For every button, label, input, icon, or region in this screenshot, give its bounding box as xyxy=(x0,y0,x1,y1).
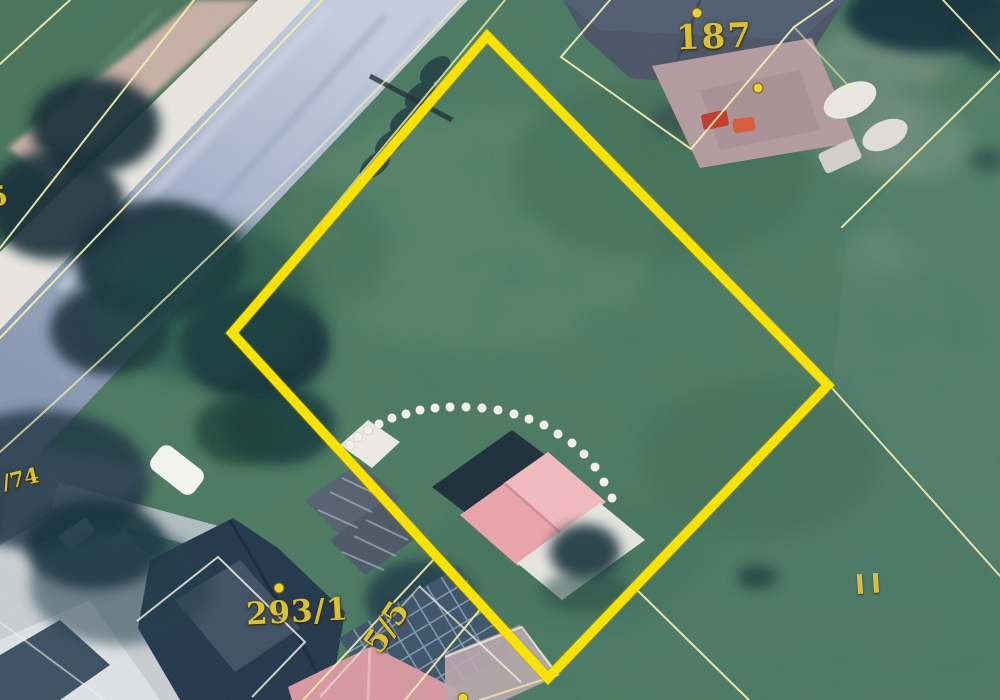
aerial-imagery xyxy=(0,0,1000,700)
parcel-label-293-1: 293/1 xyxy=(245,594,349,630)
map-viewport[interactable]: 187 293/1 5/5 /74 5 II xyxy=(0,0,1000,700)
photo-grain xyxy=(0,0,1000,700)
parcel-label-187: 187 xyxy=(675,19,753,56)
road-class-marker: II xyxy=(854,570,888,599)
